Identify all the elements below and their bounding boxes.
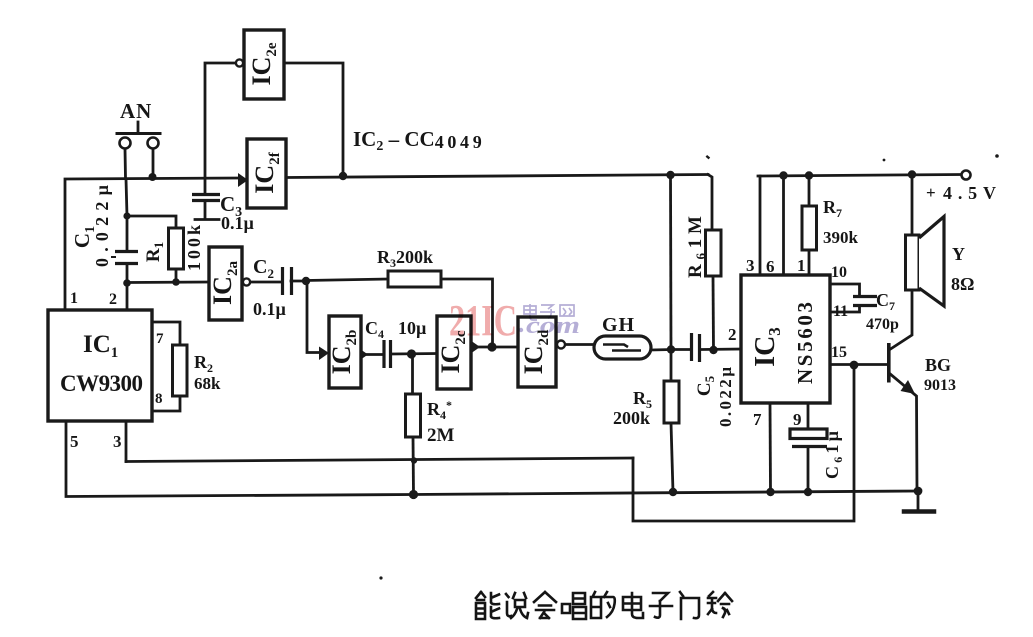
svg-text:8Ω: 8Ω xyxy=(951,274,974,294)
svg-text:0.1µ: 0.1µ xyxy=(253,299,287,319)
svg-text:2: 2 xyxy=(728,325,737,344)
svg-text:IC2 – CC4049: IC2 – CC4049 xyxy=(353,127,482,154)
svg-text:15: 15 xyxy=(831,344,847,361)
svg-text:21IC: 21IC xyxy=(449,296,517,345)
svg-text:200k: 200k xyxy=(613,408,650,428)
svg-text:R3200k: R3200k xyxy=(377,247,433,270)
svg-text:+: + xyxy=(926,183,936,202)
svg-text:com: com xyxy=(526,313,580,339)
svg-text:3: 3 xyxy=(746,256,755,275)
svg-text:68k: 68k xyxy=(194,374,221,393)
svg-text:6: 6 xyxy=(766,257,775,276)
svg-text:BG: BG xyxy=(925,355,951,375)
svg-text:470p: 470p xyxy=(866,316,899,333)
svg-text:390k: 390k xyxy=(823,228,859,247)
svg-text:3: 3 xyxy=(113,432,122,451)
svg-text:1: 1 xyxy=(797,256,806,275)
svg-text:Y: Y xyxy=(952,244,965,264)
svg-text:1: 1 xyxy=(70,290,78,307)
svg-text:7: 7 xyxy=(156,331,164,347)
svg-text:11: 11 xyxy=(833,303,848,320)
svg-text:9013: 9013 xyxy=(924,377,956,394)
svg-text:100k: 100k xyxy=(184,225,204,271)
svg-text:2: 2 xyxy=(109,291,117,308)
svg-text:10µ: 10µ xyxy=(398,318,427,338)
svg-text:2M: 2M xyxy=(427,425,455,446)
svg-text:0.1µ: 0.1µ xyxy=(221,213,255,233)
svg-text:10: 10 xyxy=(831,264,847,281)
svg-text:9: 9 xyxy=(793,410,802,429)
svg-text:AN: AN xyxy=(120,99,152,123)
svg-text:4.5V: 4.5V xyxy=(943,183,996,203)
svg-text:GH: GH xyxy=(602,314,635,336)
svg-text:R61M: R61M xyxy=(685,216,708,278)
svg-text:5: 5 xyxy=(70,432,79,451)
svg-text:CW9300: CW9300 xyxy=(60,371,143,396)
svg-text:8: 8 xyxy=(155,391,163,407)
svg-text:7: 7 xyxy=(753,410,762,429)
